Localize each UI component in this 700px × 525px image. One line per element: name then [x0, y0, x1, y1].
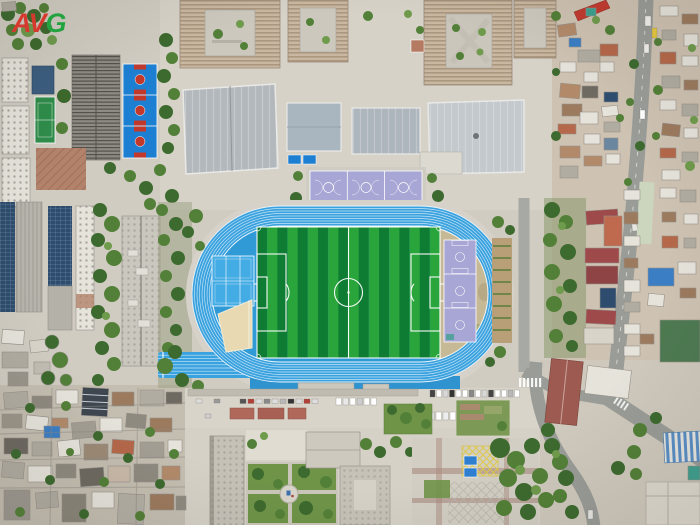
avg-logo-watermark: AVG — [11, 8, 67, 38]
vignette — [0, 0, 700, 525]
aerial-photo: AVG — [0, 0, 700, 525]
logo-text: AVG — [11, 8, 67, 38]
aerial-scene: AVG — [0, 0, 700, 525]
